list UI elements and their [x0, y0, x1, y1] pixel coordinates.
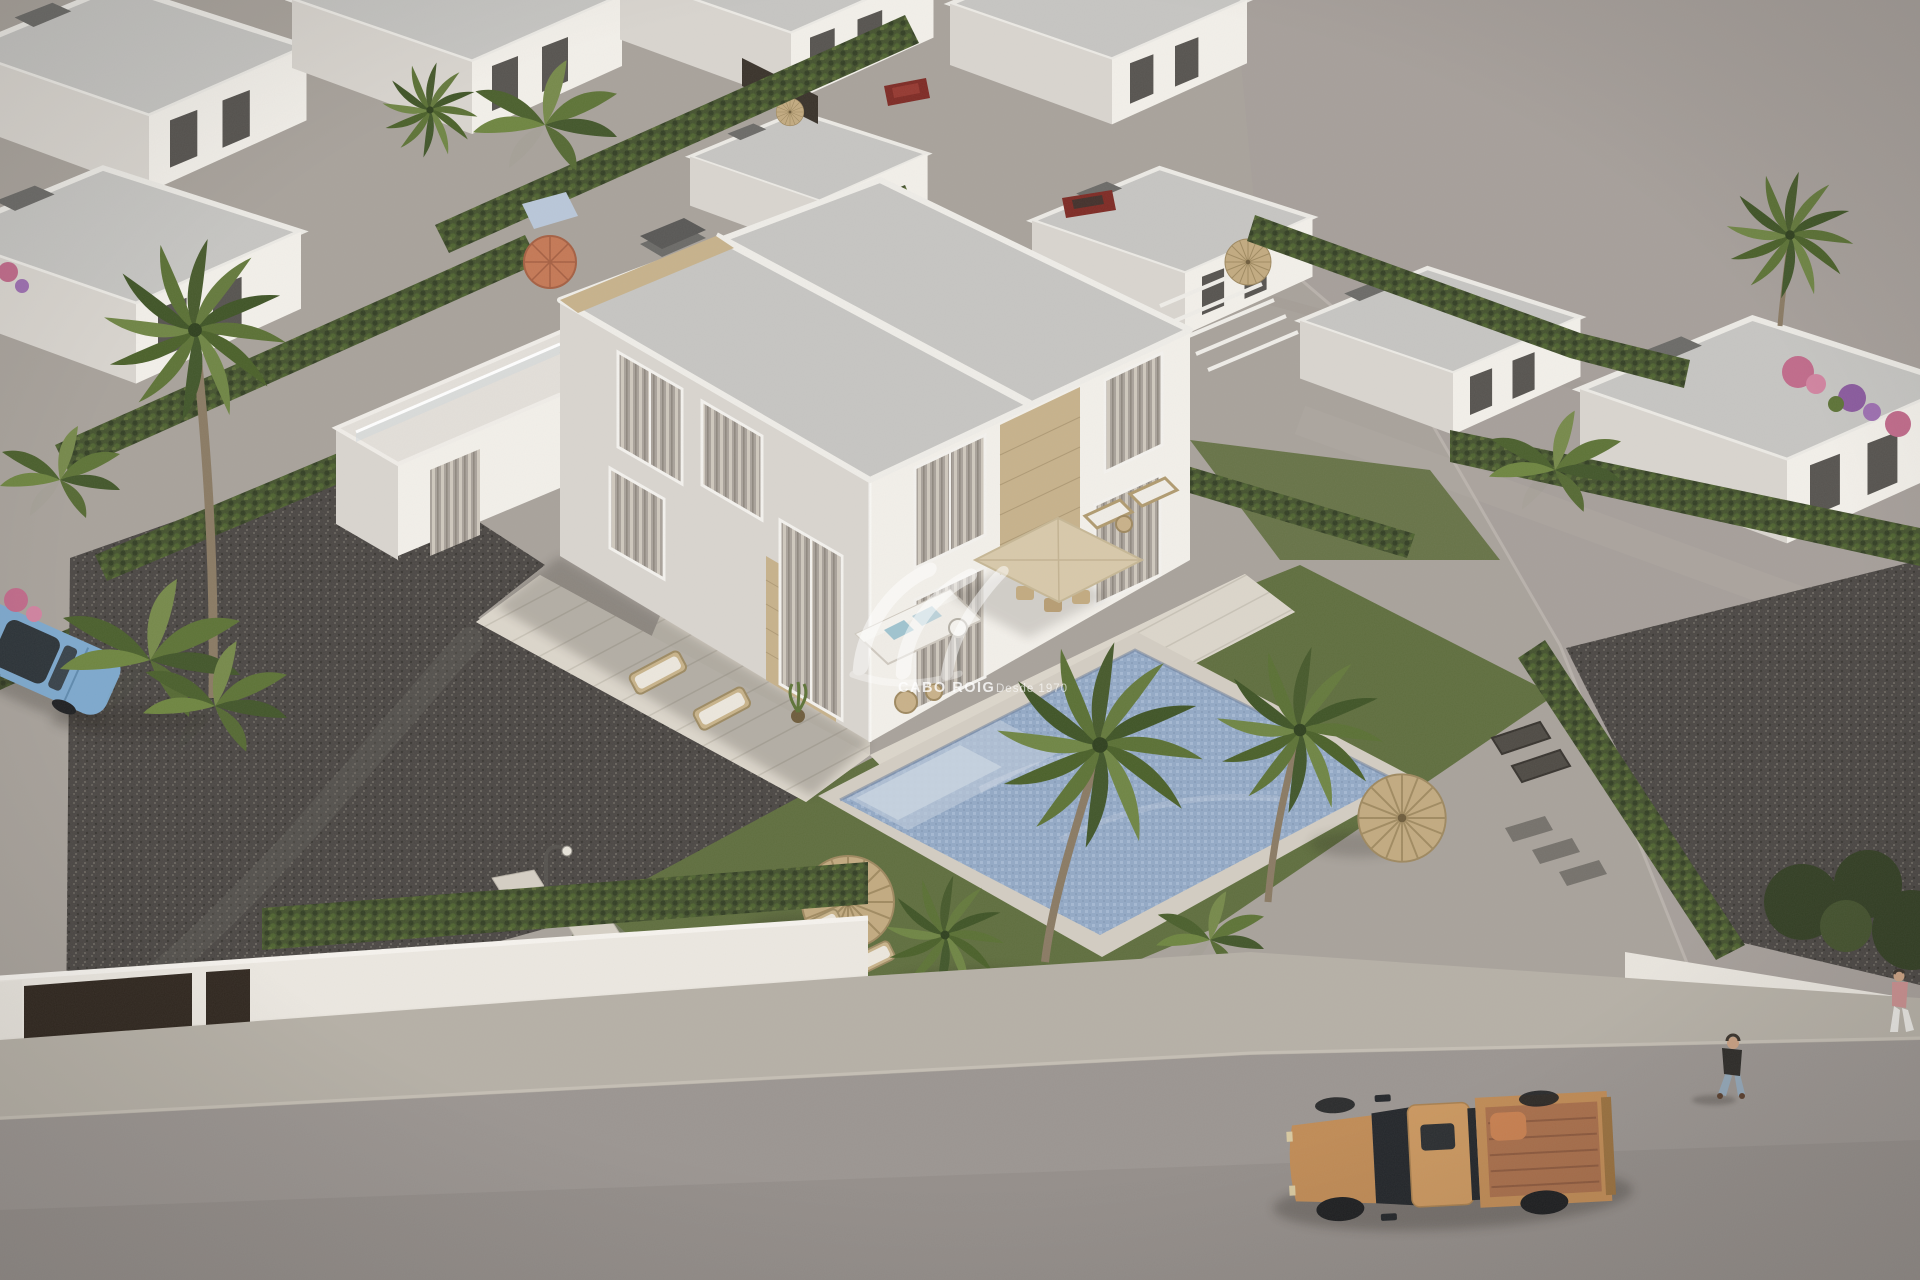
watermark-brand: CABO ROIG: [898, 680, 995, 696]
watermark-tagline: Desde 1970: [996, 683, 1068, 695]
render-image: CABO ROIG Desde 1970: [0, 0, 1920, 1280]
scene-render: CABO ROIG Desde 1970: [0, 0, 1920, 1280]
